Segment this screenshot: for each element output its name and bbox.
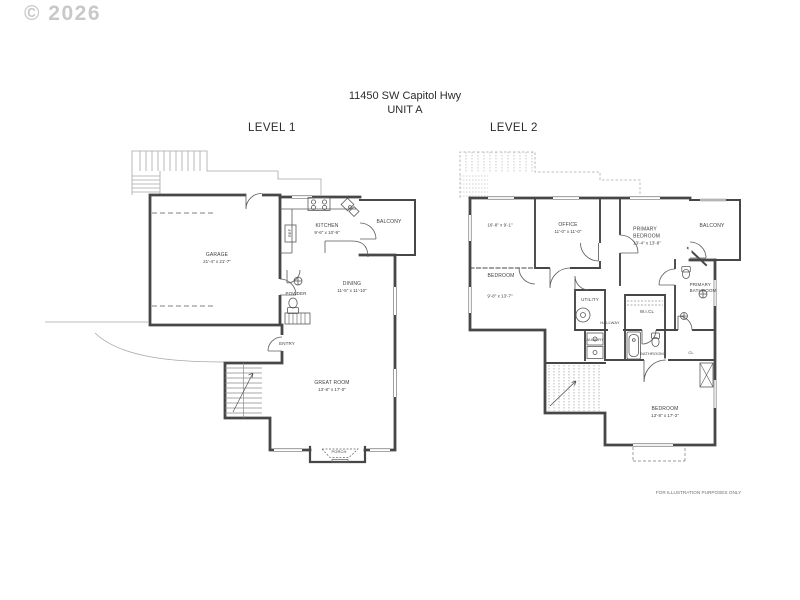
level2-windows [469,197,726,447]
label-open-area-dims: 16'-8" x 9'-1" [487,222,512,228]
unit-title: UNIT A [0,104,800,116]
room-label-laundry: LAUNDRY [584,337,604,343]
room-label-kitchen: KITCHEN 9'-6" x 10'-9" [314,222,339,235]
room-label-bedroom3: BEDROOM 13'-8" x 17'-2" [651,405,679,418]
floor-plan-level2: 16'-8" x 9'-1" BEDROOM 9'-8" x 13'-7" OF… [450,145,750,490]
powder-toilet-icon [289,298,297,308]
level1-doors [246,193,376,351]
level2-lower-deck-dashed [633,447,685,461]
level1-heading: LEVEL 1 [248,122,296,134]
level1-drawing [40,145,430,480]
room-label-closet: CL [688,350,693,356]
room-label-utility: UTILITY [581,297,599,303]
room-label-balcony-l1: BALCONY [377,219,402,226]
room-label-wicl: W.I.CL [640,309,654,315]
floor-plan-level1: GARAGE 21'-4" x 21'-7" KITCHEN 9'-6" x 1… [40,145,430,480]
room-label-porch: PORCH [331,449,346,455]
room-label-office: OFFICE 11'-0" x 11'-0" [554,221,581,234]
level2-drawing [450,145,750,490]
level2-openings [468,196,726,446]
room-label-balcony-l2: BALCONY [700,223,725,230]
level2-deck-dashed [460,152,640,198]
room-label-garage: GARAGE 21'-4" x 21'-7" [203,251,231,264]
room-label-hallway: HALLWAY [600,320,619,326]
room-label-powder: POWDER [285,291,306,297]
level1-stairs [225,363,262,418]
room-label-bathroom: BATHROOM [640,351,664,357]
copyright-watermark: © 2026 [24,2,101,26]
room-label-bedroom2: BEDROOM [488,273,515,280]
room-label-great-room: GREAT ROOM 13'-8" x 17'-0" [314,379,349,392]
label-ref: REF [287,229,293,237]
label-bedroom2-dims: 9'-8" x 13'-7" [487,293,512,299]
level2-heading: LEVEL 2 [490,122,538,134]
primary-toilet-icon [682,269,689,278]
room-label-entry: ENTRY [279,341,295,347]
room-label-primary-bathroom: PRIMARY BATHROOM [690,282,711,295]
address-title: 11450 SW Capitol Hwy [0,90,800,102]
level2-stairs [549,365,599,411]
disclaimer-text: FOR ILLUSTRATION PURPOSES ONLY [656,490,741,495]
washer-icon [576,308,590,322]
room-label-primary-bedroom: PRIMARY BEDROOM 13'-4" x 13'-8" [633,226,661,246]
room-label-dining: DINING 11'-5" x 11'-10" [337,280,367,293]
sheet-title: 11450 SW Capitol Hwy UNIT A [0,90,800,116]
level1-fixtures [280,198,368,325]
